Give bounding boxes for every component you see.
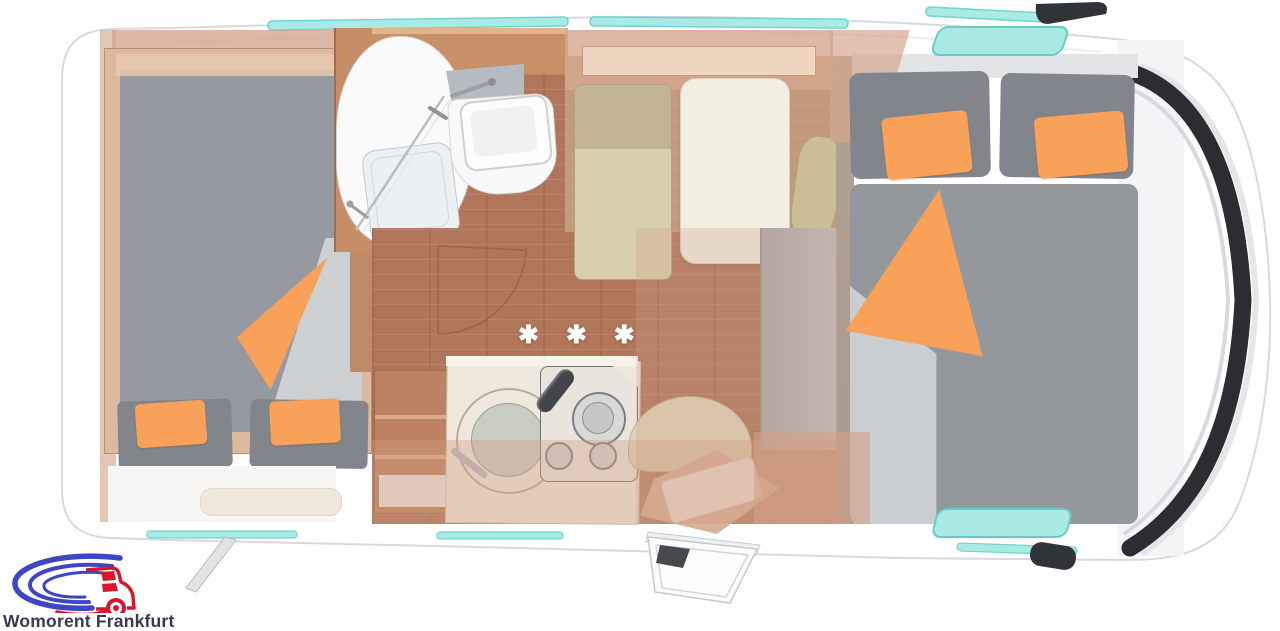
- shower-glass-door: [356, 96, 450, 233]
- washbasin-faucet-icon: [452, 78, 496, 96]
- bathroom-door-swing: [438, 246, 526, 334]
- brand-name: Womorent Frankfurt: [3, 611, 233, 631]
- motorhome-floorplan: ✱ ✱ ✱: [0, 0, 1280, 631]
- logo-swoosh: [15, 556, 120, 608]
- detail-overlay-svg: [0, 0, 1280, 631]
- brand-logo-icon: [2, 551, 172, 613]
- shower-faucet-icon: [347, 201, 369, 219]
